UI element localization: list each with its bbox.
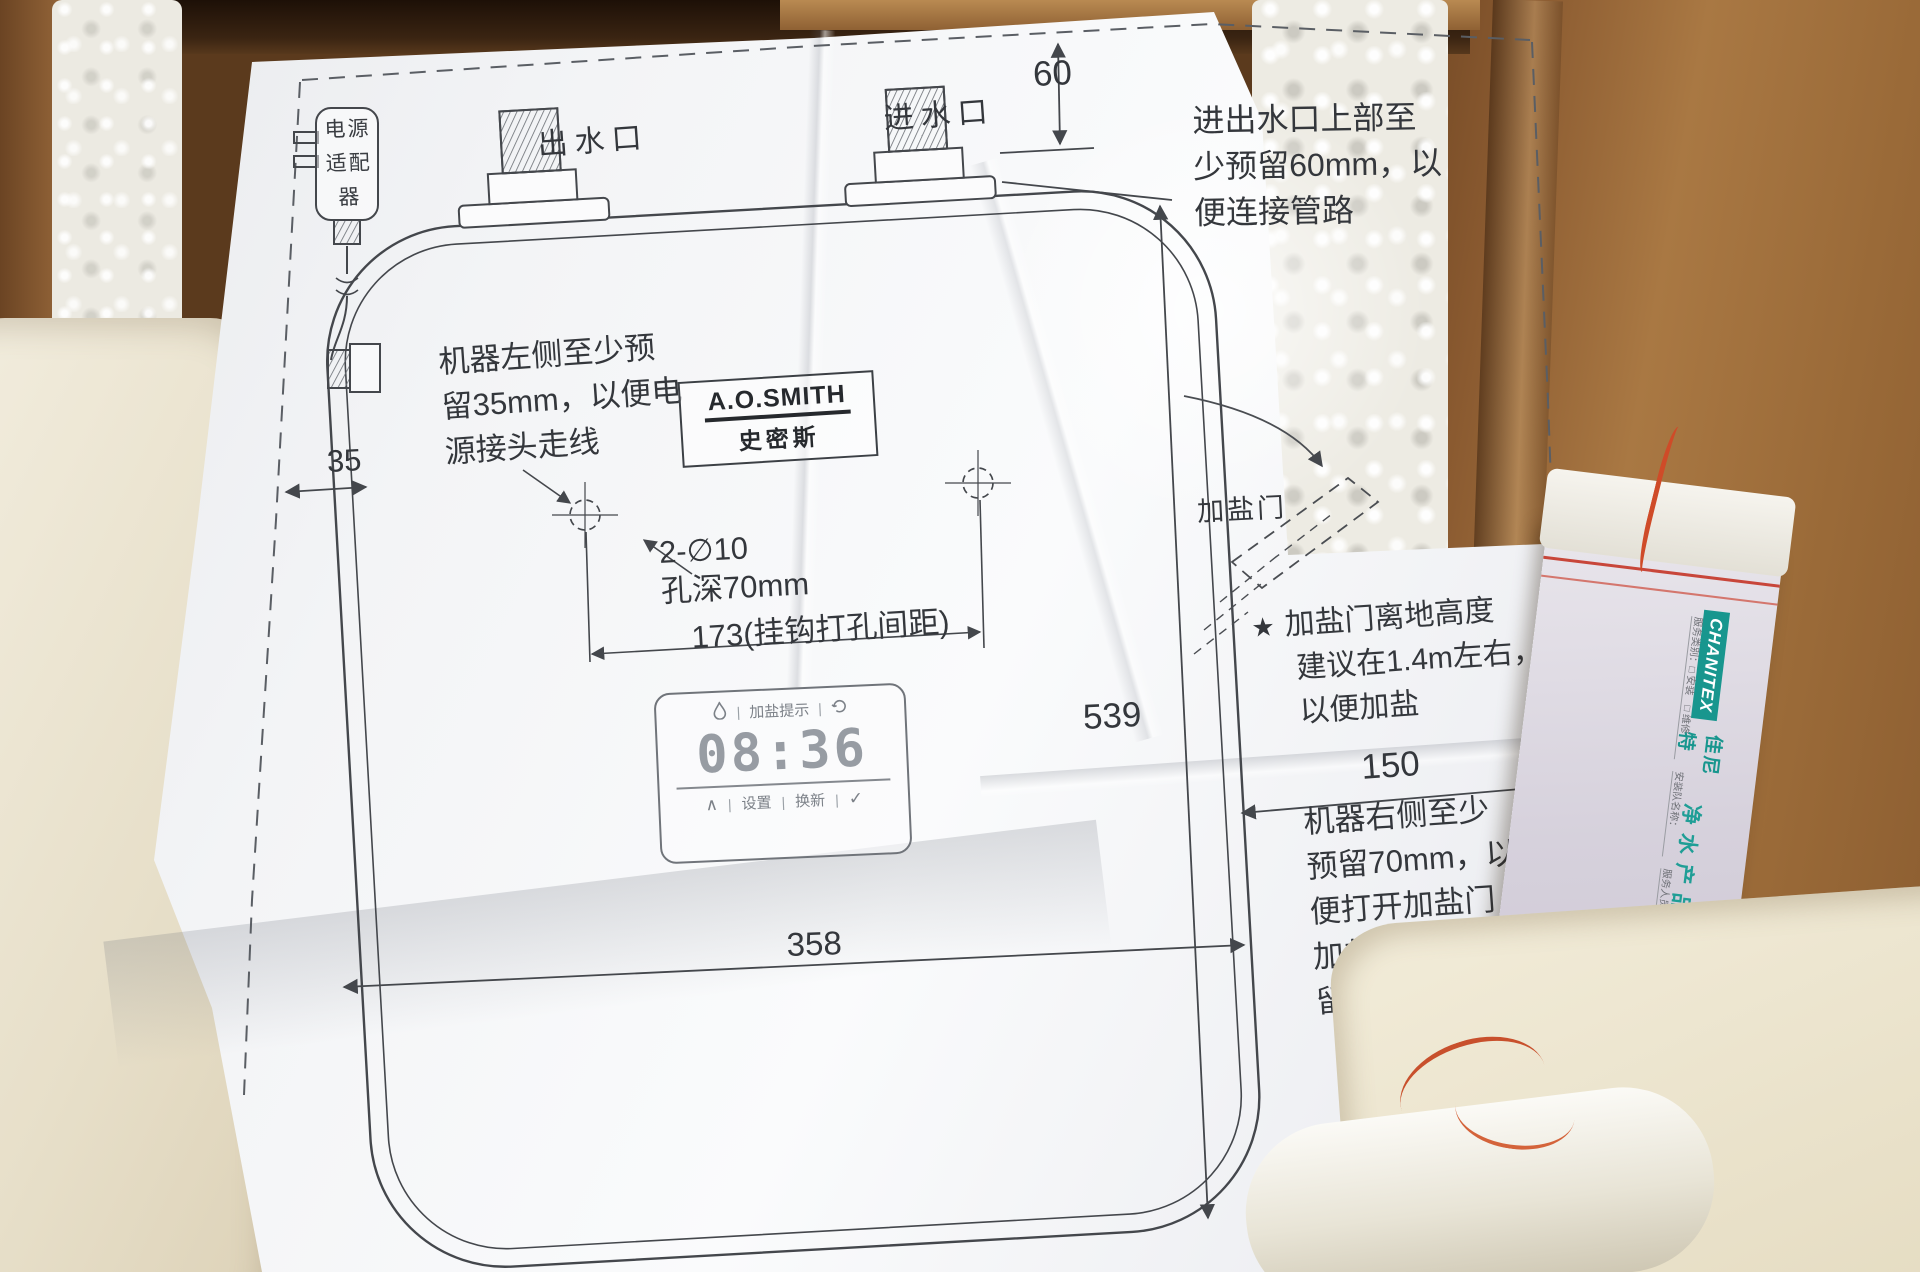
inlet-label: 进水口 <box>882 86 996 138</box>
dim-539-label: 539 <box>1082 695 1142 738</box>
outlet-label: 出水口 <box>536 112 650 164</box>
up-chevron-icon: ∧ <box>705 794 718 815</box>
control-display-panel: | 加盐提示 | 08:36 ∧ | 设置 | 换新 | ✓ <box>653 683 912 865</box>
salt-door-label: 加盐门 <box>1196 485 1288 529</box>
note-star: ★ 加盐门离地高度 建议在1.4m左右， 以便加盐 <box>1250 586 1547 738</box>
dim-150-label: 150 <box>1360 744 1421 788</box>
power-adapter-label: 电源 适配 器 <box>319 112 379 218</box>
photo-scene: 出水口 进水口 60 35 电源 适配 器 进出水口上部至 少预留60mm，以 … <box>0 0 1920 1272</box>
dim-60-label: 60 <box>1032 53 1073 95</box>
note-left: 机器左侧至少预 留35mm，以便电 源接头走线 <box>437 323 687 474</box>
brand-logo-cn: 史密斯 <box>738 418 821 457</box>
dim-35-label: 35 <box>326 442 362 480</box>
check-icon: ✓ <box>848 788 863 809</box>
brand-logo-en: A.O.SMITH <box>703 380 851 423</box>
dim-358-label: 358 <box>786 924 842 964</box>
display-time: 08:36 <box>657 716 907 789</box>
hole-spec-note: 2-∅10 孔深70mm <box>658 525 810 611</box>
renew-button-label: 换新 <box>795 789 826 811</box>
set-button-label: 设置 <box>741 792 772 814</box>
water-drop-icon <box>712 701 728 724</box>
dimension-35 <box>286 487 366 492</box>
star-icon: ★ <box>1250 604 1276 650</box>
salt-alert-label: 加盐提示 <box>749 698 810 722</box>
note-top-right: 进出水口上部至 少预留60mm，以 便连接管路 <box>1192 94 1443 236</box>
filter-cycle-icon <box>830 697 848 719</box>
brand-logo: A.O.SMITH 史密斯 <box>678 370 879 468</box>
